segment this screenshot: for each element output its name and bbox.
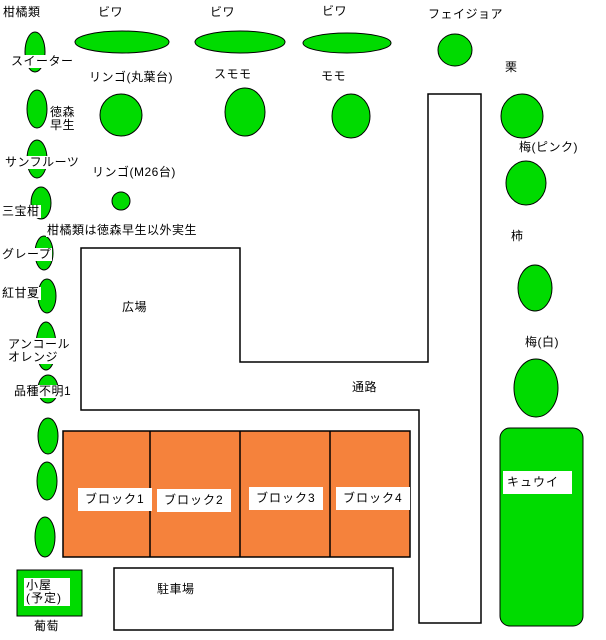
label-budou: 葡萄 [33,620,60,633]
label-kuri: 栗 [504,61,519,74]
tree-ume-pink [506,161,546,205]
label-biwa-3: ビワ [321,5,348,18]
label-grape-citrus: グレープ [1,248,52,261]
tree-feijoa [438,34,472,66]
label-feijoa: フェイジョア [427,8,504,21]
label-apple-marubadai: リンゴ(丸葉台) [88,71,174,84]
label-kaki: 柿 [510,230,525,243]
tree-apple-m26 [112,192,130,210]
tree-sumomo [225,88,265,136]
orchard-layout-map: 柑橘類 ビワ ビワ ビワ フェイジョア スイーター リンゴ(丸葉台) スモモ モ… [0,0,606,640]
tree-biwa-1 [75,31,169,53]
kiwi-bed-rect [500,428,583,626]
tree-apple-marubadai [100,94,142,136]
label-kiwi: キュウイ [503,471,572,494]
tree-citrus-unlabeled-2 [37,462,57,500]
label-sun-fruits: サンフルーツ [4,156,80,169]
tree-citrus-unlabeled-1 [38,418,58,454]
label-citrus-group: 柑橘類 [2,6,42,19]
label-biwa-1: ビワ [97,6,124,19]
tree-kuri [501,94,543,138]
tree-beni-amanatsu [38,279,56,313]
label-citrus-note: 柑橘類は徳森早生以外実生 [46,224,198,237]
label-tsuro: 通路 [351,381,378,394]
label-parking: 駐車場 [156,583,196,596]
tree-momo [332,94,370,138]
label-block-4: ブロック4 [336,487,410,510]
label-block-2: ブロック2 [157,489,231,512]
label-sumomo: スモモ [213,68,253,81]
label-sweeter: スイーター [10,55,75,68]
label-block-3: ブロック3 [249,487,323,510]
label-ume-pink: 梅(ピンク) [518,141,579,154]
parking-area-rect [114,568,393,630]
label-momo: モモ [320,70,347,83]
tree-kaki [518,265,552,311]
label-beni-amanatsu: 紅甘夏 [1,287,41,300]
label-koya: 小屋 (予定) [24,578,70,606]
label-biwa-2: ビワ [209,6,236,19]
tree-citrus-unlabeled-3 [35,517,55,557]
tree-biwa-3 [303,33,391,53]
tree-biwa-2 [195,31,285,53]
label-block-1: ブロック1 [78,488,152,511]
tree-ume-white [514,359,558,417]
label-encore-orange: アンコール オレンジ [7,338,71,364]
label-sanbokan: 三宝柑 [1,205,41,218]
label-ume-white: 梅(白) [524,336,560,349]
map-shapes-layer [0,0,606,640]
label-tokumori-wase: 徳森 早生 [49,106,76,132]
label-apple-m26: リンゴ(M26台) [91,166,177,179]
label-hiroba: 広場 [121,301,148,314]
tree-tokumori-wase [27,90,47,128]
label-hinshu-fumei1: 品種不明1 [13,385,72,398]
